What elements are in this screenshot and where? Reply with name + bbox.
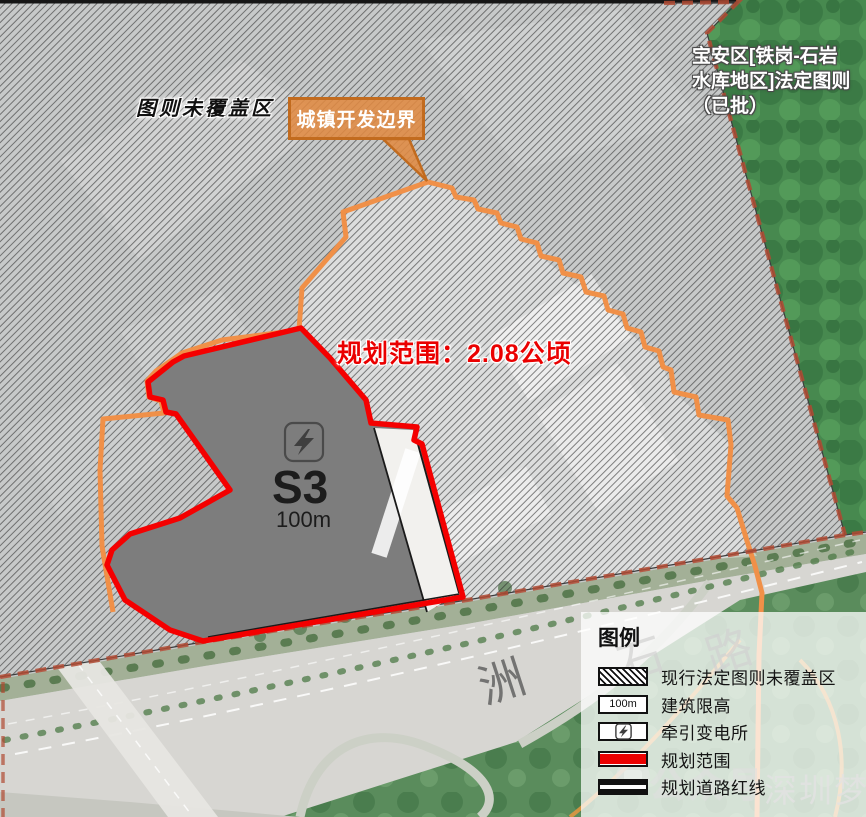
hatch-swatch-icon — [598, 667, 648, 686]
approved-plan-line: （已批） — [692, 94, 866, 119]
height-limit-label: 100m — [276, 507, 331, 533]
legend-item-road-redline: 规划道路红线 — [598, 773, 866, 801]
substation-swatch-icon — [598, 722, 648, 741]
uncovered-area-label: 图则未覆盖区 — [136, 92, 274, 121]
site-code-label: S3 — [272, 460, 328, 514]
legend-label: 现行法定图则未覆盖区 — [661, 664, 836, 689]
road-redline-swatch-icon — [598, 779, 648, 795]
development-boundary-callout: 城镇开发边界 — [288, 97, 425, 140]
planning-map: 图则未覆盖区 城镇开发边界 规划范围：2.08公顷 宝安区[铁岗-石岩 水库地区… — [0, 0, 866, 817]
red-line-swatch-icon — [598, 751, 648, 767]
lightning-bolt-icon — [615, 723, 632, 740]
legend-item-planning-scope: 规划范围 — [598, 746, 866, 774]
legend-label: 牵引变电所 — [661, 719, 749, 744]
legend-item-height-limit: 100m 建筑限高 — [598, 691, 866, 719]
approved-plan-label: 宝安区[铁岗-石岩 水库地区]法定图则 （已批） — [692, 44, 866, 119]
height-limit-swatch-icon: 100m — [598, 695, 648, 714]
approved-plan-line: 水库地区]法定图则 — [692, 69, 866, 94]
approved-plan-line: 宝安区[铁岗-石岩 — [692, 44, 866, 69]
legend-item-substation: 牵引变电所 — [598, 718, 866, 746]
legend-item-uncovered: 现行法定图则未覆盖区 — [598, 663, 866, 691]
callout-label: 城镇开发边界 — [296, 105, 416, 132]
top-border-bar — [0, 0, 737, 4]
planning-scope-label: 规划范围：2.08公顷 — [337, 334, 572, 370]
legend-label: 规划范围 — [661, 747, 731, 772]
legend-label: 建筑限高 — [661, 692, 731, 717]
legend-title: 图例 — [598, 622, 866, 652]
legend-panel: 图例 现行法定图则未覆盖区 100m 建筑限高 牵引变电所 规划范围 规划道路红… — [581, 612, 866, 817]
legend-label: 规划道路红线 — [661, 774, 766, 799]
